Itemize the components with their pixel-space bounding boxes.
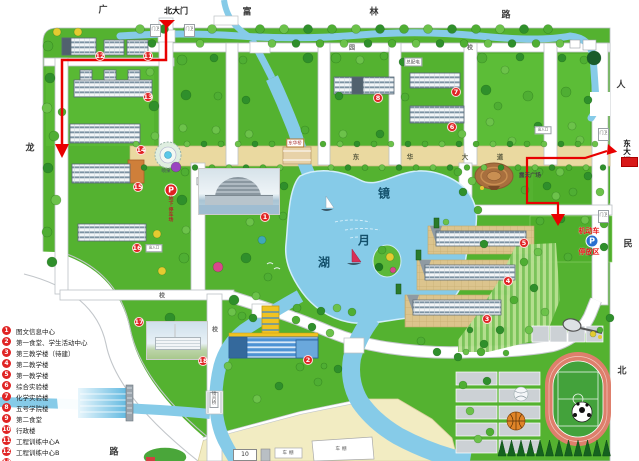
legend-item: 11 工程训练中心A bbox=[2, 435, 122, 446]
photo-inset-white-building bbox=[146, 321, 208, 360]
map-badge: 5 bbox=[519, 238, 529, 248]
legend-item: 8 五号学院楼 bbox=[2, 402, 122, 413]
legend-item: 4 第二教学楼 bbox=[2, 358, 122, 369]
avenue-bridge bbox=[283, 147, 311, 164]
map-badge: 12 bbox=[95, 51, 105, 61]
map-badge: 3 bbox=[482, 314, 492, 324]
legend-item: 2 第一食堂、学生活动中心 bbox=[2, 336, 122, 347]
legend-item: 10 行政楼 bbox=[2, 424, 122, 435]
legend-badge: 2 bbox=[2, 337, 11, 346]
gate-guard-box-nw: 门卫 bbox=[150, 24, 161, 37]
legend-badge: 1 bbox=[2, 326, 11, 335]
map-badge: 11 bbox=[143, 51, 153, 61]
legend-badge: 3 bbox=[2, 348, 11, 357]
east-bridge-sign: 东华桥 bbox=[286, 139, 304, 148]
vehicle-area-p-icon: P bbox=[586, 235, 599, 248]
legend-badge: 12 bbox=[2, 447, 11, 456]
campus-road-char3: 校 bbox=[159, 291, 165, 300]
building-10-outline: 10 bbox=[233, 449, 257, 461]
map-badge: 16 bbox=[132, 243, 142, 253]
gate-guard-box-e2: 门卫 bbox=[598, 210, 609, 223]
lake-name-char3: 湖 bbox=[318, 254, 330, 271]
legend-item: 5 第一教学楼 bbox=[2, 369, 122, 380]
legend-badge: 8 bbox=[2, 403, 11, 412]
map-badge: 17 bbox=[134, 317, 144, 327]
photo-inset-library bbox=[198, 168, 280, 215]
entrance-sign-3: 出入口 bbox=[535, 126, 552, 134]
map-badge: 8 bbox=[373, 93, 383, 103]
road-renmin-char3: 北 bbox=[617, 364, 626, 377]
legend-item: 13 bbox=[2, 457, 122, 461]
legend-badge: 4 bbox=[2, 359, 11, 368]
map-badge: 14 bbox=[136, 145, 146, 155]
bike-shed-label-1: 车棚 bbox=[283, 450, 296, 456]
legend-badge: 9 bbox=[2, 414, 11, 423]
legend-label: 第一教学楼 bbox=[16, 370, 49, 380]
legend-badge: 5 bbox=[2, 370, 11, 379]
entrance-sign-2: 出入口 bbox=[146, 244, 163, 252]
legend-item: 6 综合实验楼 bbox=[2, 380, 122, 391]
lake-island bbox=[373, 245, 401, 277]
legend-item: 9 第二食堂 bbox=[2, 413, 122, 424]
underground-parking-p-icon: P bbox=[165, 184, 178, 197]
legend-label: 第二教学楼 bbox=[16, 359, 49, 369]
gate-guard-box-ne: 门卫 bbox=[184, 24, 195, 37]
lake-name-char2: 月 bbox=[358, 232, 370, 249]
campus-road-char2: 校 bbox=[467, 43, 473, 52]
map-badge: 13 bbox=[143, 92, 153, 102]
legend-item: 12 工程训练中心B bbox=[2, 446, 122, 457]
map-badge: 7 bbox=[451, 87, 461, 97]
power-station-sign: 总配电 bbox=[404, 58, 422, 67]
legend-label: 工程训练中心B bbox=[16, 447, 59, 457]
avenue-char2: 华 bbox=[407, 151, 414, 161]
road-label-partial: 广 bbox=[98, 3, 107, 16]
map-badge: 4 bbox=[503, 276, 513, 286]
legend-label: 图文信息中心 bbox=[16, 326, 55, 336]
legend-item: 3 第三教学楼（待建） bbox=[2, 347, 122, 358]
road-fulin-char3: 路 bbox=[501, 8, 510, 21]
map-badge: 2 bbox=[303, 355, 313, 365]
road-renmin-char2: 民 bbox=[623, 237, 632, 250]
map-badge: 15 bbox=[133, 182, 143, 192]
avenue-char3: 大 bbox=[462, 151, 469, 161]
road-fulin-char2: 林 bbox=[369, 5, 378, 18]
legend-label: 化学实验楼 bbox=[16, 392, 49, 402]
legend-label: 行政楼 bbox=[16, 425, 36, 435]
avenue-char4: 道 bbox=[497, 151, 504, 161]
legend-badge: 11 bbox=[2, 436, 11, 445]
campus-road-char4: 校 bbox=[212, 325, 218, 334]
map-badge: 18 bbox=[198, 356, 208, 366]
volleyball-icon bbox=[514, 387, 528, 401]
soccer-ball-icon bbox=[572, 402, 592, 422]
basketball-icon bbox=[507, 412, 525, 430]
legend-badge: 7 bbox=[2, 392, 11, 401]
lake-name-char1: 镜 bbox=[378, 185, 390, 202]
legend-label: 五号学院楼 bbox=[16, 403, 49, 413]
legend-label: 工程训练中心A bbox=[16, 436, 59, 446]
legend-badge: 10 bbox=[2, 425, 11, 434]
plaza-label: 露天广场 bbox=[519, 171, 541, 179]
legend-label: 第二食堂 bbox=[16, 414, 42, 424]
south-bridge-sign: 镜月桥 bbox=[210, 392, 219, 408]
avenue-char1: 东 bbox=[353, 151, 360, 161]
vehicle-area-line2: 停放区 bbox=[579, 247, 600, 257]
map-badge: 6 bbox=[447, 122, 457, 132]
underground-parking-label: 地下停车场 bbox=[167, 197, 176, 224]
north-gate-label: 北大门 bbox=[164, 6, 188, 17]
campus-road-char1: 园 bbox=[349, 43, 355, 52]
campus-map: 广 富 林 路 人 民 北 龙 路 东 华 大 道 园 校 校 校 北大门 东大… bbox=[0, 0, 639, 461]
legend-badge: 6 bbox=[2, 381, 11, 390]
map-badge: 1 bbox=[260, 212, 270, 222]
legend: 1 图文信息中心 2 第一食堂、学生活动中心 3 第三教学楼（待建） 4 第二教… bbox=[2, 325, 122, 461]
fountain-label: 喷泉 bbox=[162, 168, 171, 174]
legend-label: 第一食堂、学生活动中心 bbox=[16, 337, 88, 347]
road-fulin-char1: 富 bbox=[242, 5, 251, 18]
gate-guard-box-e1: 门卫 bbox=[598, 128, 609, 141]
legend-label: 综合实验楼 bbox=[16, 381, 49, 391]
road-renmin-char1: 人 bbox=[616, 78, 625, 91]
legend-item: 7 化学实验楼 bbox=[2, 391, 122, 402]
bike-shed-label-2: 车棚 bbox=[336, 446, 349, 452]
east-gate-sign bbox=[621, 157, 638, 167]
legend-label: 第三教学楼（待建） bbox=[16, 348, 75, 358]
legend-item: 1 图文信息中心 bbox=[2, 325, 122, 336]
road-left-char1: 龙 bbox=[25, 141, 34, 154]
